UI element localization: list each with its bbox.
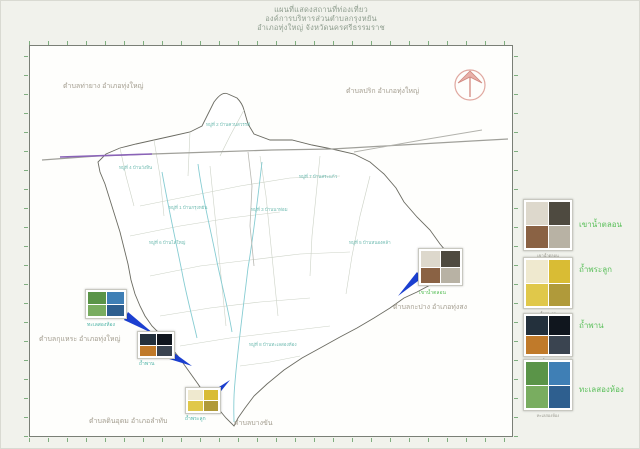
tick-marks-left [24,45,28,437]
map-photo-thale-song-hong [85,289,127,319]
photo-cell [204,401,219,411]
edge-label-prik: ตำบลปริก อำเภอทุ่งใหญ่ [346,86,419,97]
map-artwork [30,46,512,436]
photo-cell [526,362,548,385]
legend-photo-khao-nam-talon [523,199,573,251]
subdistrict-boundary [98,93,454,426]
legend-label-tham-phan: ถ้ำพาน [579,319,604,332]
photo-cell [526,260,548,283]
village-label: หมู่ที่ 2 บ้านควนสวรรค์ [206,121,250,128]
legend-label-thale-song-hong: ทะเลสองห้อง [579,383,624,396]
photo-cell [526,202,548,225]
legend-photo-caption: ทะเลสองห้อง [523,412,573,419]
legend-photo-tham-phra-luk [523,257,573,309]
map-photo-caption: ถ้ำพระลูก [185,415,206,423]
edge-label-tha-yang: ตำบลท่ายาง อำเภอทุ่งใหญ่ [63,81,144,92]
edge-label-kapang: ตำบลกะปาง อำเภอทุ่งสง [393,302,467,313]
tick-marks-right [514,45,518,437]
photo-cell [549,336,571,355]
map-photo-caption: ทะเลสองห้อง [87,321,115,329]
photo-cell [549,260,571,283]
photo-cell [526,226,548,249]
photo-cell [88,292,106,304]
village-label: หมู่ที่ 7 บ้านสระแก้ว [299,173,337,180]
photo-cell [549,202,571,225]
photo-cell [549,284,571,307]
map-photo-tham-phra-luk [185,387,221,414]
map-title-line1: แผนที่แสดงสถานที่ท่องเที่ยว [1,5,640,14]
photo-cell [526,316,548,335]
map-photo-khao-nam-talon [418,248,463,286]
village-label: หมู่ที่ 8 บ้านทะเลสองห้อง [249,341,297,348]
photo-cell [140,346,156,357]
photo-cell [549,226,571,249]
map-photo-tham-phan [137,331,175,359]
map-photo-caption: ถ้ำพาน [139,360,154,368]
photo-cell [188,401,203,411]
legend-photo-thale-song-hong [523,359,573,411]
legend-label-khao-nam-talon: เขาน้ำตลอน [579,218,622,231]
edge-label-ku-rae: ตำบลกุแหระ อำเภอทุ่งใหญ่ [39,334,120,345]
map-title-line2: องค์การบริหารส่วนตำบลกรุงหยัน [1,14,640,23]
photo-cell [88,305,106,317]
photo-cell [549,386,571,409]
photo-cell [526,336,548,355]
village-label: หมู่ที่ 1 บ้านกรุงหยัน [169,204,207,211]
photo-cell [421,268,440,284]
photo-cell [549,362,571,385]
north-arrow-icon [451,63,489,108]
edge-label-din-udom: ตำบลดินอุดม อำเภอลำทับ [89,416,167,427]
photo-cell [107,292,125,304]
village-label: หมู่ที่ 6 บ้านไสใหญ่ [149,239,185,246]
photo-cell [441,251,460,267]
photo-cell [157,346,173,357]
photo-cell [526,386,548,409]
photo-cell [526,284,548,307]
tick-marks-bottom [29,438,513,442]
photo-cell [188,390,203,400]
photo-cell [140,334,156,345]
photo-cell [421,251,440,267]
photo-cell [549,316,571,335]
legend-label-tham-phra-luk: ถ้ำพระลูก [579,263,612,276]
photo-cell [441,268,460,284]
photo-cell [157,334,173,345]
map-title-line3: อำเภอทุ่งใหญ่ จังหวัดนครศรีธรรมราช [1,23,640,32]
photo-cell [107,305,125,317]
map-photo-caption: เขาน้ำตลอน [419,289,446,297]
legend-photo-tham-phan [523,313,573,357]
page-background: แผนที่แสดงสถานที่ท่องเที่ยว องค์การบริหา… [0,0,640,449]
village-label: หมู่ที่ 3 บ้านนาท่อม [251,206,288,213]
village-label: หมู่ที่ 4 บ้านวังหิน [119,164,152,171]
photo-cell [204,390,219,400]
village-label: หมู่ที่ 5 บ้านหนองคล้า [349,239,391,246]
edge-label-bang-khan: ตำบลบางขัน [234,418,273,429]
